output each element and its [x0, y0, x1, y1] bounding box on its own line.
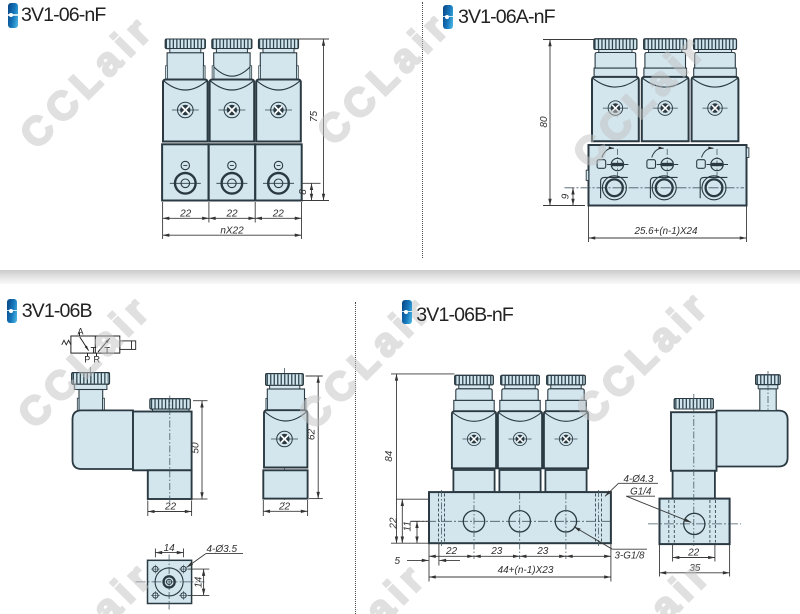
svg-text:50: 50 — [191, 442, 202, 454]
svg-text:3-G1/8: 3-G1/8 — [615, 550, 646, 561]
svg-text:11: 11 — [403, 521, 414, 531]
svg-text:84: 84 — [384, 450, 395, 462]
svg-text:G1/4: G1/4 — [630, 487, 652, 498]
svg-text:14: 14 — [194, 576, 205, 588]
svg-text:nX22: nX22 — [220, 225, 244, 236]
svg-text:CCLair: CCLair — [309, 2, 460, 153]
svg-text:22: 22 — [388, 517, 399, 530]
svg-text:23: 23 — [490, 546, 503, 557]
svg-text:CCLair: CCLair — [285, 553, 436, 614]
svg-text:CCLair: CCLair — [570, 550, 721, 614]
svg-text:22: 22 — [445, 546, 458, 557]
svg-text:CCLair: CCLair — [12, 6, 163, 157]
svg-text:80: 80 — [539, 116, 550, 128]
svg-text:4-Ø3.5: 4-Ø3.5 — [207, 544, 238, 555]
svg-text:44+(n-1)X23: 44+(n-1)X23 — [498, 565, 554, 576]
svg-text:8: 8 — [298, 189, 309, 195]
svg-text:22: 22 — [278, 501, 291, 512]
svg-text:25.6+(n-1)X24: 25.6+(n-1)X24 — [634, 226, 698, 237]
svg-text:22: 22 — [225, 209, 238, 220]
svg-text:14: 14 — [164, 543, 176, 554]
svg-text:9: 9 — [561, 193, 572, 199]
svg-text:CCLair: CCLair — [12, 552, 163, 614]
svg-text:22: 22 — [164, 502, 177, 513]
svg-text:22: 22 — [179, 209, 192, 220]
svg-text:4-Ø4.3: 4-Ø4.3 — [624, 474, 655, 485]
svg-text:22: 22 — [272, 209, 285, 220]
svg-text:CCLair: CCLair — [568, 281, 719, 432]
svg-text:23: 23 — [536, 546, 549, 557]
